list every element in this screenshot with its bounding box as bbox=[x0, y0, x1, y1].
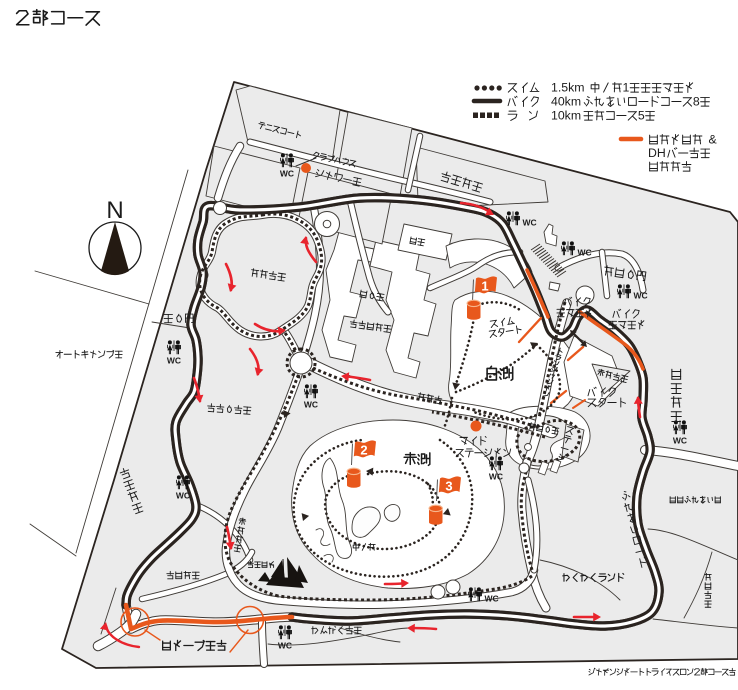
svg-text:WC: WC bbox=[485, 594, 499, 604]
svg-text:2: 2 bbox=[360, 443, 367, 458]
svg-text:1: 1 bbox=[481, 279, 488, 294]
svg-text:N: N bbox=[106, 197, 123, 224]
svg-text:WC: WC bbox=[578, 248, 592, 258]
svg-text:WC: WC bbox=[167, 356, 181, 366]
svg-text:WC: WC bbox=[523, 218, 537, 228]
svg-text:WC: WC bbox=[634, 291, 648, 301]
svg-text:WC: WC bbox=[278, 641, 292, 651]
svg-text:1: 1 bbox=[623, 80, 630, 94]
svg-text:&: & bbox=[709, 132, 718, 146]
svg-text:8: 8 bbox=[693, 94, 700, 108]
svg-text:WC: WC bbox=[304, 400, 318, 410]
svg-text:WC: WC bbox=[280, 169, 294, 179]
svg-text:WC: WC bbox=[673, 436, 687, 446]
svg-text:40km: 40km bbox=[551, 94, 581, 108]
svg-text:5: 5 bbox=[638, 108, 645, 122]
svg-text:3: 3 bbox=[445, 479, 452, 494]
svg-text:1.5km: 1.5km bbox=[551, 80, 585, 94]
svg-text:WC: WC bbox=[176, 491, 190, 501]
svg-text:WC: WC bbox=[489, 472, 503, 482]
svg-text:10km: 10km bbox=[551, 108, 581, 122]
svg-text:DH: DH bbox=[648, 146, 666, 160]
